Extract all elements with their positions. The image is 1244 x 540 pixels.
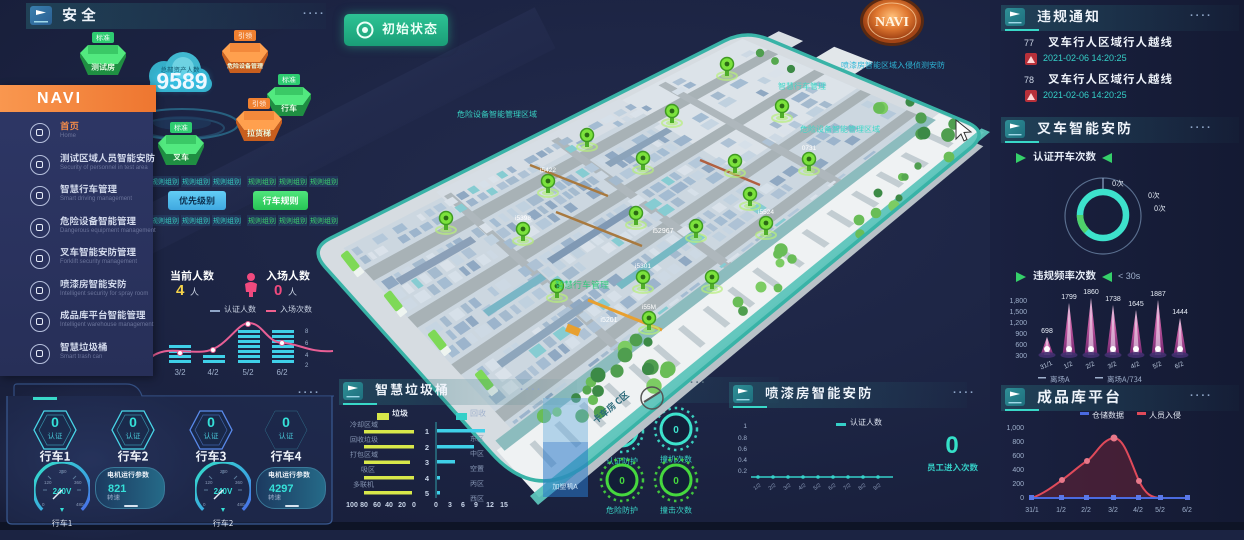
svg-text:1887: 1887 — [1150, 291, 1166, 298]
svg-text:6/2: 6/2 — [1174, 360, 1185, 370]
svg-text:360: 360 — [235, 480, 243, 485]
svg-text:0.4: 0.4 — [738, 457, 747, 464]
svg-text:2/2: 2/2 — [768, 483, 778, 492]
svg-text:5/2: 5/2 — [1152, 360, 1163, 370]
svg-text:0: 0 — [1020, 495, 1024, 502]
svg-text:800: 800 — [1012, 439, 1024, 446]
svg-text:240V: 240V — [214, 487, 233, 496]
svg-text:600: 600 — [1015, 342, 1027, 349]
svg-text:1/2: 1/2 — [1063, 360, 1074, 370]
svg-text:300: 300 — [1015, 353, 1027, 360]
svg-text:3/2: 3/2 — [783, 483, 793, 492]
svg-text:0.8: 0.8 — [738, 435, 747, 442]
svg-text:480: 480 — [76, 502, 84, 507]
svg-text:2/2: 2/2 — [1085, 360, 1096, 370]
svg-text:1444: 1444 — [1172, 309, 1188, 316]
svg-text:7/2: 7/2 — [843, 483, 853, 492]
svg-text:31/1: 31/1 — [1039, 360, 1054, 372]
svg-text:2: 2 — [305, 363, 309, 369]
svg-text:0: 0 — [42, 502, 45, 507]
svg-text:0: 0 — [673, 476, 679, 487]
svg-text:1799: 1799 — [1061, 294, 1077, 301]
svg-text:0: 0 — [412, 502, 416, 509]
svg-text:3/2: 3/2 — [1107, 360, 1118, 370]
svg-text:0.6: 0.6 — [738, 446, 747, 453]
svg-text:5/2: 5/2 — [242, 368, 254, 377]
svg-text:9: 9 — [474, 502, 478, 509]
svg-text:40: 40 — [385, 502, 393, 509]
svg-text:6: 6 — [305, 341, 309, 347]
svg-text:20: 20 — [398, 502, 406, 509]
svg-text:1,200: 1,200 — [1009, 320, 1027, 327]
svg-text:1,800: 1,800 — [1009, 298, 1027, 305]
svg-text:400: 400 — [1012, 467, 1024, 474]
svg-text:698: 698 — [1041, 328, 1053, 335]
svg-text:0: 0 — [673, 425, 679, 436]
svg-text:4/2: 4/2 — [1130, 360, 1141, 370]
svg-text:4/2: 4/2 — [1133, 507, 1143, 514]
svg-text:100: 100 — [346, 502, 358, 509]
svg-text:0: 0 — [434, 502, 438, 509]
svg-text:NAVI: NAVI — [875, 15, 909, 30]
svg-text:240: 240 — [59, 469, 67, 474]
svg-text:240: 240 — [220, 469, 228, 474]
svg-text:200: 200 — [1012, 481, 1024, 488]
svg-text:1: 1 — [743, 423, 747, 430]
svg-text:0.2: 0.2 — [738, 468, 747, 475]
svg-text:120: 120 — [44, 480, 52, 485]
svg-text:360: 360 — [74, 480, 82, 485]
svg-text:4: 4 — [425, 474, 430, 483]
svg-text:5/2: 5/2 — [1155, 507, 1165, 514]
svg-text:6/2: 6/2 — [1182, 507, 1192, 514]
svg-text:600: 600 — [1012, 453, 1024, 460]
svg-text:8: 8 — [305, 329, 309, 335]
svg-text:4/2: 4/2 — [207, 368, 219, 377]
svg-text:1738: 1738 — [1105, 296, 1121, 303]
svg-text:1/2: 1/2 — [1056, 507, 1066, 514]
svg-text:3/2: 3/2 — [1108, 507, 1118, 514]
svg-text:1645: 1645 — [1128, 301, 1144, 308]
svg-text:3: 3 — [448, 502, 452, 509]
svg-text:6: 6 — [461, 502, 465, 509]
svg-text:2/2: 2/2 — [1081, 507, 1091, 514]
svg-text:240V: 240V — [53, 487, 72, 496]
svg-text:15: 15 — [500, 502, 508, 509]
svg-text:4: 4 — [305, 353, 309, 359]
svg-text:0: 0 — [619, 476, 625, 487]
svg-text:1,500: 1,500 — [1009, 309, 1027, 316]
svg-text:12: 12 — [486, 502, 494, 509]
svg-text:6/2: 6/2 — [276, 368, 288, 377]
svg-text:3: 3 — [425, 458, 429, 467]
svg-text:31/1: 31/1 — [1025, 507, 1039, 514]
svg-text:9/2: 9/2 — [873, 483, 883, 492]
svg-text:2: 2 — [425, 443, 429, 452]
svg-text:900: 900 — [1015, 331, 1027, 338]
svg-text:1860: 1860 — [1083, 289, 1099, 296]
svg-text:480: 480 — [237, 502, 245, 507]
svg-text:8/2: 8/2 — [858, 483, 868, 492]
svg-text:5: 5 — [425, 489, 429, 498]
svg-text:6/2: 6/2 — [828, 483, 838, 492]
svg-text:0: 0 — [619, 427, 625, 438]
svg-text:4/2: 4/2 — [798, 483, 808, 492]
svg-text:1/2: 1/2 — [753, 483, 763, 492]
svg-text:1: 1 — [425, 427, 429, 436]
svg-text:120: 120 — [205, 480, 213, 485]
svg-text:60: 60 — [373, 502, 381, 509]
svg-text:3/2: 3/2 — [174, 368, 186, 377]
svg-text:80: 80 — [360, 502, 368, 509]
svg-text:0: 0 — [203, 502, 206, 507]
svg-text:1,000: 1,000 — [1006, 425, 1024, 432]
svg-text:5/2: 5/2 — [813, 483, 823, 492]
